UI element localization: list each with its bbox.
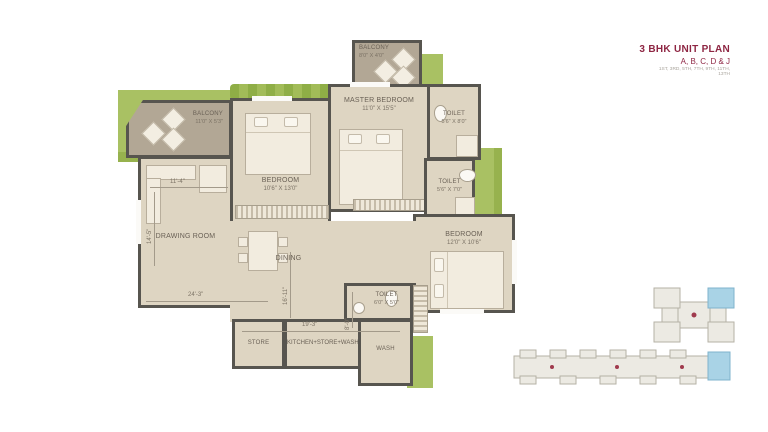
bed xyxy=(339,129,403,205)
room-dim: 12'0" X 10'6" xyxy=(416,240,512,248)
room-label: KITCHEN+STORE+WASH xyxy=(287,340,358,348)
room-dim: 6'0" X 5'0" xyxy=(363,300,410,307)
window xyxy=(350,82,390,87)
room-wash: WASH xyxy=(358,319,413,386)
room-dim: 10'6" X 13'0" xyxy=(233,186,328,194)
room-label: BEDROOM xyxy=(416,231,512,240)
room-bedroom-right: BEDROOM 12'0" X 10'6" xyxy=(413,214,515,313)
window xyxy=(136,200,141,244)
dimension-label: 8'-0" xyxy=(345,318,351,330)
room-label: WASH xyxy=(361,346,410,354)
dining-table xyxy=(248,231,278,271)
window xyxy=(440,309,484,314)
room-label: TOILET xyxy=(427,179,472,187)
dining-chair xyxy=(278,237,288,247)
wardrobe xyxy=(353,199,429,211)
room-dining: DINING xyxy=(230,221,347,322)
tv-unit xyxy=(199,165,227,193)
passage xyxy=(344,221,416,283)
room-dim: 8'0" X 4'0" xyxy=(359,53,419,60)
room-bedroom-left: BEDROOM 10'6" X 13'0" xyxy=(230,98,331,224)
dimension-line xyxy=(146,301,268,302)
room-toilet-mid: TOILET 5'6" X 7'0" xyxy=(424,158,475,221)
floor-numbers: 1ST, 3RD, 5TH, 7TH, 9TH, 11TH, 13TH xyxy=(656,67,730,77)
dimension-line xyxy=(150,187,228,188)
room-label: DINING xyxy=(230,255,347,264)
room-label: MASTER BEDROOM xyxy=(331,97,427,106)
room-label: BALCONY xyxy=(359,45,419,53)
dimension-line xyxy=(154,192,155,266)
dimension-label: 11'-4" xyxy=(170,179,185,185)
room-dim: 5'6" X 8'0" xyxy=(430,119,478,126)
pillow xyxy=(434,284,444,298)
room-label: TOILET xyxy=(430,111,478,119)
blanket-fold xyxy=(340,150,402,151)
room-label: BALCONY xyxy=(129,111,223,119)
room-label: TOILET xyxy=(363,292,410,300)
room-balcony-left: BALCONY 11'0" X 5'3" xyxy=(126,100,232,158)
dimension-label: 14'-5" xyxy=(147,229,153,244)
service-ladder xyxy=(413,285,428,333)
blanket-fold xyxy=(447,252,448,308)
room-master-bedroom: MASTER BEDROOM 11'0" X 15'5" xyxy=(328,84,430,212)
keyplan-tower-icon xyxy=(648,284,740,346)
room-balcony-top: BALCONY 8'0" X 4'0" xyxy=(352,40,422,88)
dimension-line xyxy=(290,252,291,318)
dimension-label: 19'-3" xyxy=(302,322,317,328)
room-dim: 11'0" X 5'3" xyxy=(129,119,223,126)
pillow xyxy=(348,134,362,144)
page-title: 3 BHK UNIT PLAN xyxy=(638,44,730,55)
pillow xyxy=(284,117,298,127)
room-toilet-small: TOILET 6'0" X 5'0" xyxy=(344,283,413,321)
title-block: 3 BHK UNIT PLAN A, B, C, D & J 1ST, 3RD,… xyxy=(638,44,730,79)
room-store: STORE xyxy=(232,319,285,369)
bed xyxy=(245,113,311,175)
pillow xyxy=(376,134,390,144)
room-dim: 11'0" X 15'5" xyxy=(331,106,427,114)
keyplan-row-icon xyxy=(512,342,732,390)
floor-plan-page: BALCONY 8'0" X 4'0" BALCONY 11'0" X 5'3"… xyxy=(0,0,768,432)
window xyxy=(252,96,292,101)
room-toilet-top: TOILET 5'6" X 8'0" xyxy=(427,84,481,160)
pillow xyxy=(434,258,444,272)
window xyxy=(512,240,517,284)
bed xyxy=(430,251,504,309)
room-label: BEDROOM xyxy=(233,177,328,186)
dimension-label: 24'-3" xyxy=(188,292,203,298)
dimension-line xyxy=(352,292,353,328)
shower-tray xyxy=(456,135,478,157)
wardrobe xyxy=(235,205,329,219)
pillow xyxy=(254,117,268,127)
blanket-fold xyxy=(246,132,310,133)
unit-letters: A, B, C, D & J xyxy=(638,57,730,66)
dimension-label: 16'-11" xyxy=(283,287,289,305)
room-label: STORE xyxy=(235,340,282,348)
dimension-line xyxy=(242,331,400,332)
dining-chair xyxy=(238,237,248,247)
balcony-tile xyxy=(161,127,185,151)
room-dim: 5'6" X 7'0" xyxy=(427,187,472,194)
